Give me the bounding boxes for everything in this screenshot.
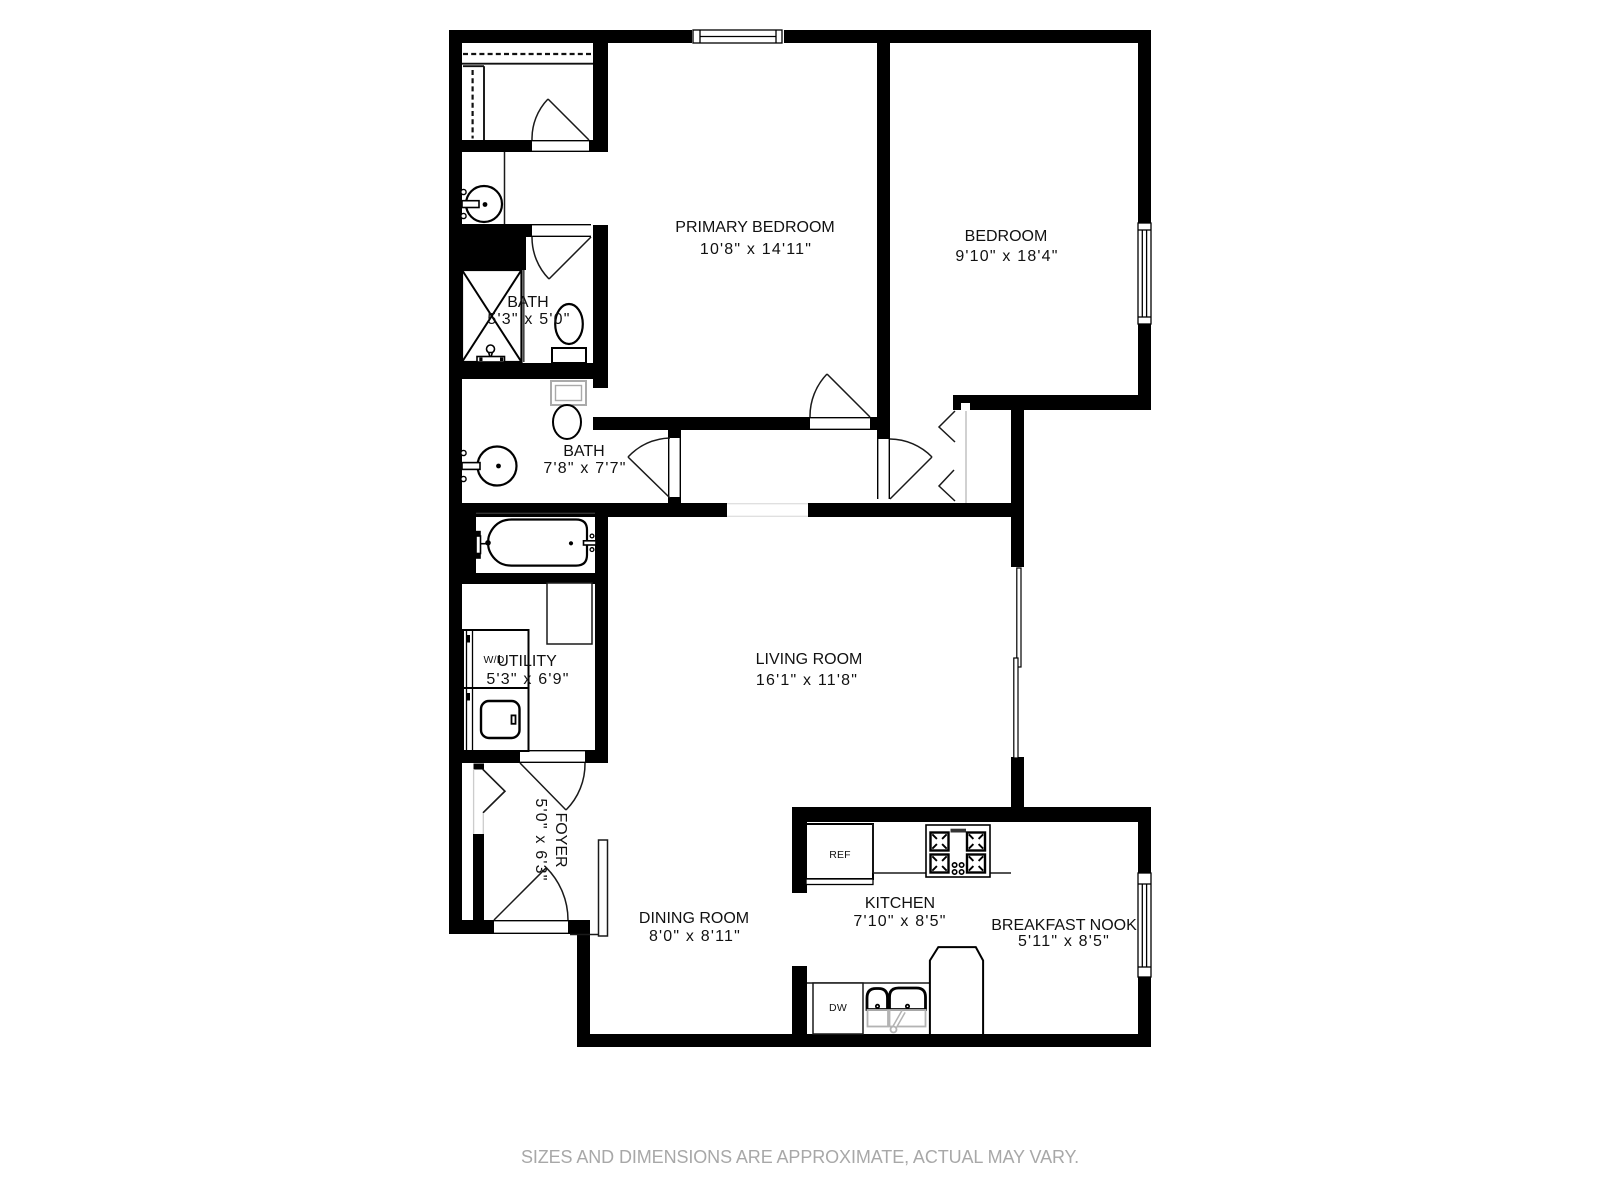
svg-text:BATH: BATH xyxy=(563,443,604,460)
svg-text:5'3" x 5'0": 5'3" x 5'0" xyxy=(487,311,570,328)
svg-text:9'10" x 18'4": 9'10" x 18'4" xyxy=(955,248,1058,265)
svg-text:PRIMARY BEDROOM: PRIMARY BEDROOM xyxy=(675,219,834,236)
svg-text:BATH: BATH xyxy=(507,294,548,311)
svg-text:BEDROOM: BEDROOM xyxy=(965,228,1048,245)
svg-text:10'8" x 14'11": 10'8" x 14'11" xyxy=(700,241,812,258)
svg-text:KITCHEN: KITCHEN xyxy=(865,895,935,912)
svg-text:REF: REF xyxy=(829,849,851,861)
svg-text:5'3" x 6'9": 5'3" x 6'9" xyxy=(486,671,569,688)
svg-text:16'1" x 11'8": 16'1" x 11'8" xyxy=(756,672,858,689)
svg-text:7'10" x 8'5": 7'10" x 8'5" xyxy=(853,913,946,930)
svg-text:5'0" x 6'3": 5'0" x 6'3" xyxy=(532,798,549,881)
svg-text:8'0" x 8'11": 8'0" x 8'11" xyxy=(649,928,741,945)
svg-text:5'11" x 8'5": 5'11" x 8'5" xyxy=(1018,933,1110,950)
svg-text:W/D: W/D xyxy=(483,654,504,666)
svg-text:BREAKFAST NOOK: BREAKFAST NOOK xyxy=(991,917,1137,934)
svg-text:DW: DW xyxy=(829,1002,847,1014)
svg-text:UTILITY: UTILITY xyxy=(497,653,557,670)
svg-text:LIVING ROOM: LIVING ROOM xyxy=(756,651,863,668)
svg-text:FOYER: FOYER xyxy=(552,812,569,867)
svg-text:SIZES AND DIMENSIONS ARE APPRO: SIZES AND DIMENSIONS ARE APPROXIMATE, AC… xyxy=(521,1147,1079,1167)
svg-text:DINING ROOM: DINING ROOM xyxy=(639,910,749,927)
svg-text:7'8" x 7'7": 7'8" x 7'7" xyxy=(543,460,626,477)
